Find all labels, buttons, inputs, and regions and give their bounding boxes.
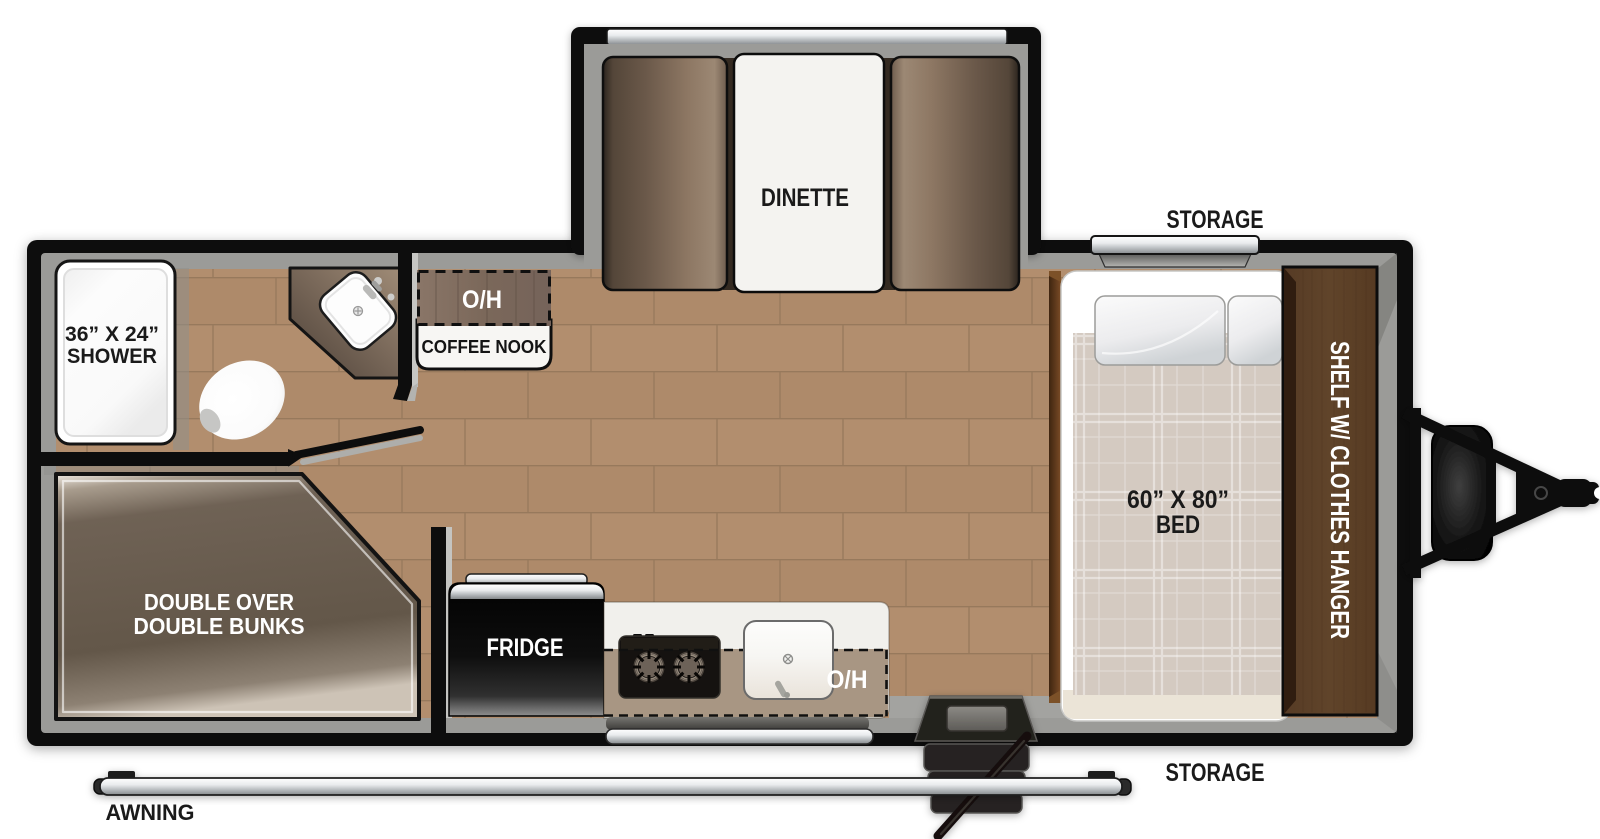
svg-text:FRIDGE: FRIDGE [487,634,564,662]
svg-text:BED: BED [1156,511,1200,539]
svg-text:AWNING: AWNING [106,800,195,825]
svg-text:SHELF W/ CLOTHES HANGER: SHELF W/ CLOTHES HANGER [1325,341,1355,639]
svg-text:STORAGE: STORAGE [1166,759,1265,787]
svg-text:36” X 24”: 36” X 24” [65,323,159,346]
svg-text:DOUBLE BUNKS: DOUBLE BUNKS [134,613,305,639]
svg-text:O/H: O/H [462,286,502,314]
svg-text:SHOWER: SHOWER [67,345,157,368]
svg-text:COFFEE NOOK: COFFEE NOOK [422,337,547,357]
svg-text:60” X 80”: 60” X 80” [1127,486,1229,514]
svg-text:O/H: O/H [827,666,868,694]
svg-text:DINETTE: DINETTE [761,184,849,212]
svg-text:STORAGE: STORAGE [1167,206,1264,234]
svg-text:DOUBLE OVER: DOUBLE OVER [144,589,294,615]
